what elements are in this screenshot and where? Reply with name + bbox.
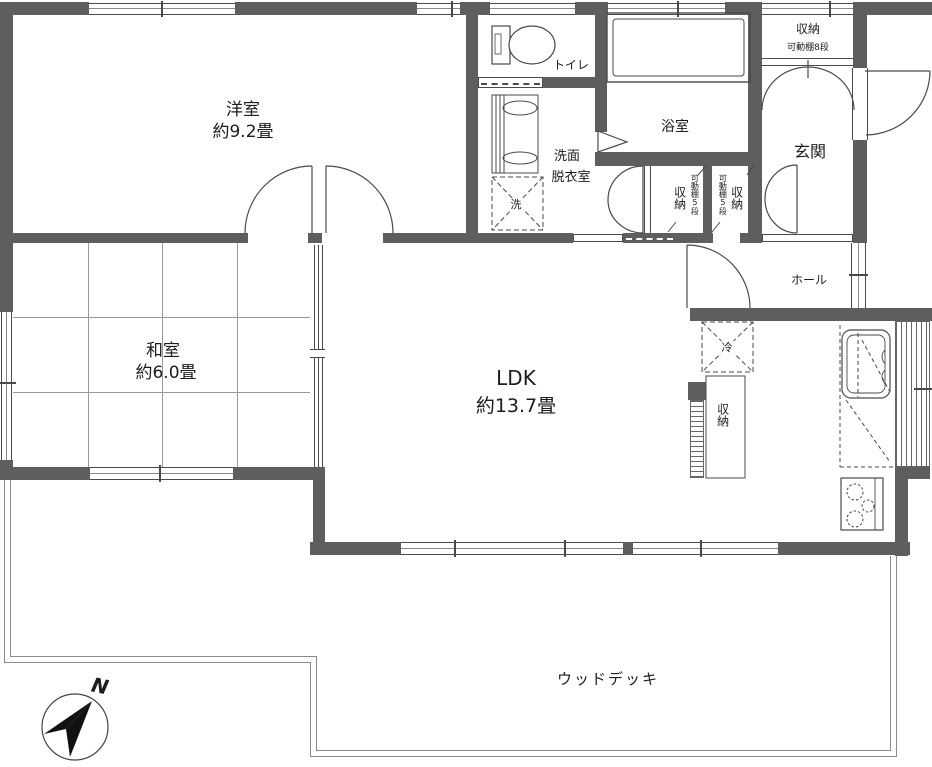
pantry-cabinet bbox=[706, 376, 745, 478]
double-door-western-room bbox=[245, 166, 393, 233]
floor-plan: 洋室 約9.2畳 トイレ 浴室 洗面 脱衣室 洗 収納 可動棚8段 玄関 ホール… bbox=[0, 0, 932, 767]
closet-right-label: 収納 bbox=[730, 186, 743, 210]
entrance-label: 玄関 bbox=[770, 138, 850, 162]
vanity-icon bbox=[492, 95, 538, 173]
toilet-label: トイレ bbox=[541, 56, 601, 73]
washroom-label-line2: 脱衣室 bbox=[531, 166, 611, 185]
washroom-label-line1: 洗面 bbox=[537, 145, 597, 164]
pantry-label: 収納 bbox=[716, 403, 729, 427]
compass-icon bbox=[42, 694, 108, 760]
entry-closet-note: 可動棚8段 bbox=[768, 40, 848, 53]
closet-left-label: 収納 bbox=[673, 186, 686, 210]
bathroom-label: 浴室 bbox=[635, 116, 715, 136]
refrigerator-label: 冷 bbox=[716, 339, 738, 355]
ldk-label: LDK bbox=[466, 366, 566, 390]
hall-label: ホール bbox=[769, 271, 849, 288]
entry-closet-label: 収納 bbox=[768, 20, 848, 37]
wood-deck-outline bbox=[5, 480, 897, 757]
bath-folding-door bbox=[598, 131, 627, 152]
hall-ldk-door bbox=[687, 245, 750, 308]
ldk-size: 約13.7畳 bbox=[436, 391, 596, 418]
entry-closet-doors bbox=[762, 60, 854, 110]
closet-right-note: 可動棚5段 bbox=[718, 174, 726, 215]
fusuma-slider bbox=[310, 245, 325, 467]
wood-deck-label: ウッドデッキ bbox=[508, 668, 708, 689]
washroom-door bbox=[608, 166, 643, 233]
kitchen-sink-icon bbox=[842, 330, 890, 398]
closet-left-note: 可動棚5段 bbox=[690, 174, 698, 215]
japanese-room-size: 約6.0畳 bbox=[106, 358, 226, 383]
front-door bbox=[865, 71, 930, 135]
washing-machine-label: 洗 bbox=[505, 196, 527, 212]
refrigerator-text: 冷 bbox=[721, 341, 734, 354]
bathtub-icon bbox=[607, 13, 750, 82]
compass-north-label: N bbox=[85, 672, 115, 701]
western-room-size: 約9.2畳 bbox=[183, 117, 303, 142]
washing-machine-text: 洗 bbox=[510, 198, 523, 211]
stove-icon bbox=[841, 478, 883, 530]
entrance-hall-door bbox=[765, 165, 797, 233]
